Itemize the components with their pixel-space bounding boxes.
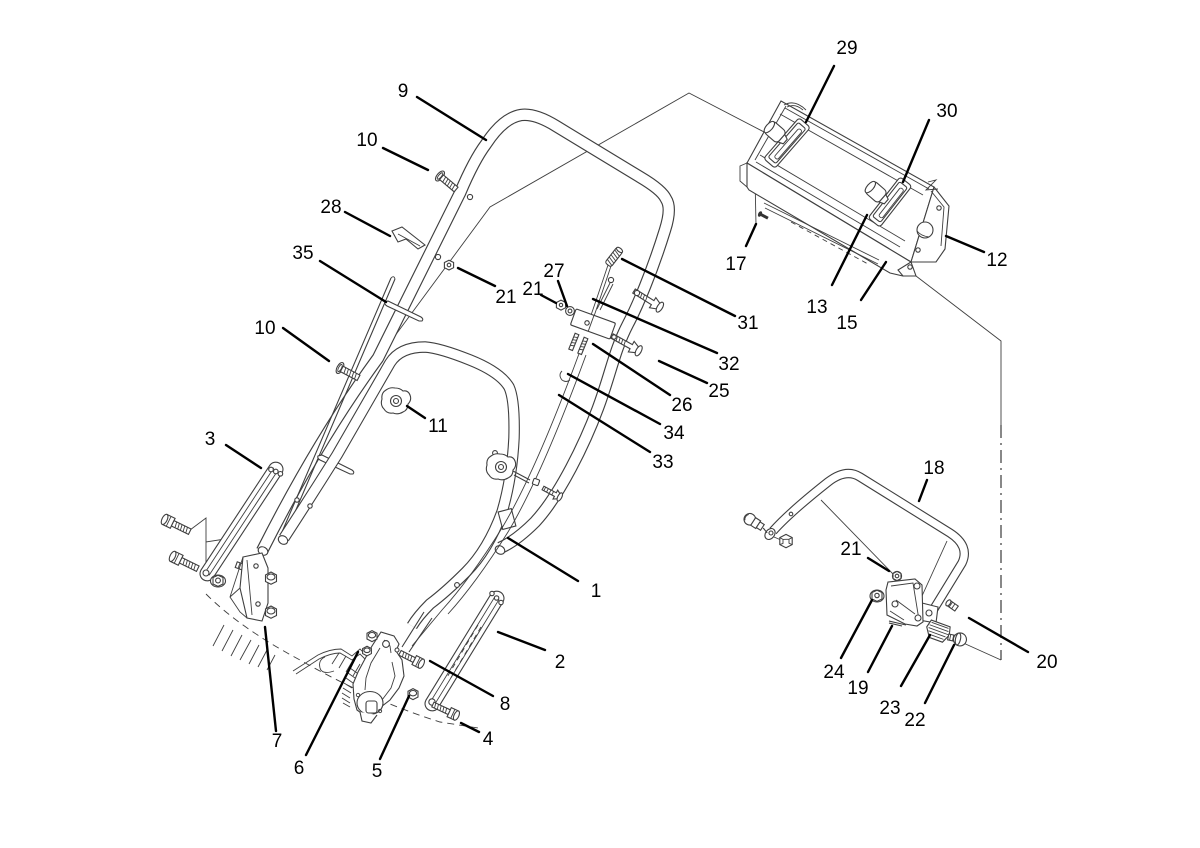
svg-text:5: 5 bbox=[372, 761, 383, 782]
svg-text:26: 26 bbox=[671, 395, 692, 416]
svg-text:17: 17 bbox=[725, 254, 746, 275]
svg-text:21: 21 bbox=[522, 279, 543, 300]
svg-text:20: 20 bbox=[1036, 652, 1057, 673]
svg-text:12: 12 bbox=[986, 250, 1007, 271]
svg-text:31: 31 bbox=[737, 313, 758, 334]
svg-text:7: 7 bbox=[272, 731, 283, 752]
svg-text:15: 15 bbox=[836, 313, 857, 334]
svg-text:13: 13 bbox=[806, 297, 827, 318]
svg-text:25: 25 bbox=[708, 381, 729, 402]
svg-text:29: 29 bbox=[836, 38, 857, 59]
svg-text:23: 23 bbox=[879, 698, 900, 719]
svg-text:32: 32 bbox=[718, 354, 739, 375]
svg-text:3: 3 bbox=[205, 429, 216, 450]
svg-text:22: 22 bbox=[904, 710, 925, 731]
svg-text:34: 34 bbox=[663, 423, 685, 444]
svg-text:18: 18 bbox=[923, 458, 944, 479]
svg-text:11: 11 bbox=[428, 416, 448, 437]
svg-text:8: 8 bbox=[500, 694, 511, 715]
svg-text:19: 19 bbox=[847, 678, 868, 699]
svg-text:2: 2 bbox=[555, 652, 566, 673]
svg-text:35: 35 bbox=[292, 243, 313, 264]
svg-text:21: 21 bbox=[495, 287, 516, 308]
svg-text:4: 4 bbox=[483, 729, 494, 750]
svg-text:24: 24 bbox=[823, 662, 845, 683]
svg-text:27: 27 bbox=[543, 261, 564, 282]
svg-text:21: 21 bbox=[840, 539, 861, 560]
svg-text:33: 33 bbox=[652, 452, 673, 473]
svg-text:1: 1 bbox=[591, 581, 602, 602]
svg-text:30: 30 bbox=[936, 101, 957, 122]
svg-text:9: 9 bbox=[398, 81, 409, 102]
svg-text:28: 28 bbox=[320, 197, 341, 218]
svg-text:6: 6 bbox=[294, 758, 305, 779]
svg-text:10: 10 bbox=[254, 318, 275, 339]
svg-text:10: 10 bbox=[356, 130, 377, 151]
